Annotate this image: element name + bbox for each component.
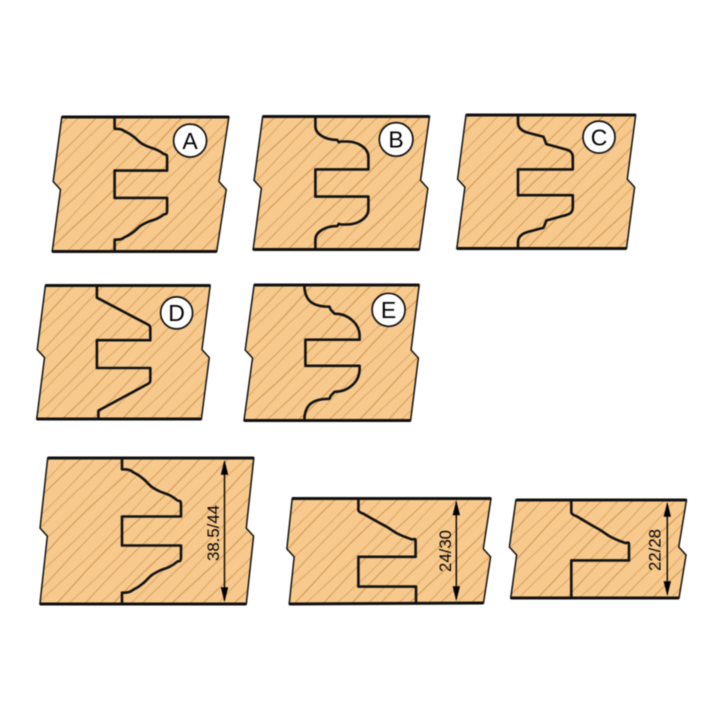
svg-text:E: E — [381, 297, 396, 323]
svg-text:B: B — [388, 127, 403, 153]
svg-text:C: C — [591, 124, 608, 150]
svg-text:38.5/44: 38.5/44 — [204, 505, 223, 561]
svg-text:24/30: 24/30 — [436, 530, 455, 572]
svg-text:22/28: 22/28 — [646, 529, 665, 571]
svg-text:D: D — [168, 300, 185, 326]
svg-text:A: A — [182, 128, 198, 154]
